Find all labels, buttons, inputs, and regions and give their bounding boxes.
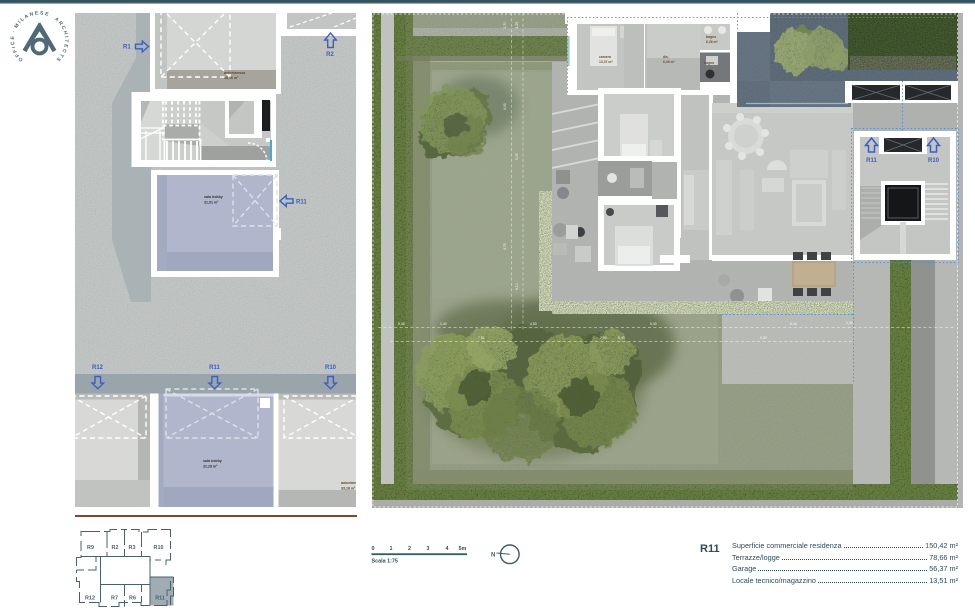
svg-text:0,30: 0,30 xyxy=(760,336,767,340)
svg-text:camera: camera xyxy=(599,55,611,59)
svg-text:1,40: 1,40 xyxy=(440,322,447,326)
svg-text:dis.: dis. xyxy=(663,55,669,59)
svg-text:bagno: bagno xyxy=(704,61,714,65)
svg-text:38,06 m²: 38,06 m² xyxy=(224,76,239,80)
svg-text:5,40: 5,40 xyxy=(650,322,657,326)
svg-text:R1: R1 xyxy=(123,45,131,51)
svg-text:R11: R11 xyxy=(296,200,307,206)
svg-text:4,53: 4,53 xyxy=(530,322,537,326)
svg-text:0,30: 0,30 xyxy=(846,321,853,325)
svg-text:0: 0 xyxy=(372,546,375,552)
svg-text:13,37 m²: 13,37 m² xyxy=(599,60,613,64)
svg-text:6,44: 6,44 xyxy=(790,322,797,326)
svg-text:0,40: 0,40 xyxy=(618,336,625,340)
svg-text:5,05: 5,05 xyxy=(515,153,519,160)
svg-text:R10: R10 xyxy=(154,545,164,551)
svg-text:4,75: 4,75 xyxy=(503,243,507,250)
svg-text:7,51: 7,51 xyxy=(478,336,485,340)
svg-text:R10: R10 xyxy=(325,365,337,371)
svg-text:R11: R11 xyxy=(209,365,220,371)
svg-text:32,28 m²: 32,28 m² xyxy=(203,465,218,469)
svg-text:5m: 5m xyxy=(459,546,467,552)
svg-text:R2: R2 xyxy=(112,545,119,551)
svg-text:R12: R12 xyxy=(85,596,95,602)
svg-text:R10: R10 xyxy=(928,158,940,164)
svg-text:33,18 m²: 33,18 m² xyxy=(341,487,356,491)
svg-text:autorimessa: autorimessa xyxy=(224,71,246,75)
svg-text:6,10: 6,10 xyxy=(515,283,519,290)
svg-text:R11: R11 xyxy=(155,596,165,602)
svg-text:R7: R7 xyxy=(111,596,118,602)
svg-text:1: 1 xyxy=(390,546,393,552)
svg-text:R12: R12 xyxy=(92,365,104,371)
svg-text:7,00: 7,00 xyxy=(600,336,607,340)
svg-text:3: 3 xyxy=(427,546,430,552)
svg-text:2,70: 2,70 xyxy=(503,22,507,29)
svg-text:3,25: 3,25 xyxy=(515,22,519,29)
svg-text:bagno: bagno xyxy=(706,35,716,39)
svg-text:6,26 m²: 6,26 m² xyxy=(706,40,719,44)
svg-text:2: 2 xyxy=(408,546,411,552)
svg-text:sala hobby: sala hobby xyxy=(203,459,222,463)
svg-text:4,35: 4,35 xyxy=(503,103,507,110)
svg-text:sala hobby: sala hobby xyxy=(204,195,223,199)
svg-text:31,91 m²: 31,91 m² xyxy=(204,201,219,205)
svg-text:4: 4 xyxy=(446,546,449,552)
svg-text:Scala 1:75: Scala 1:75 xyxy=(372,559,398,565)
svg-text:R9: R9 xyxy=(87,545,94,551)
svg-text:R3: R3 xyxy=(129,545,136,551)
svg-text:6,36 m²: 6,36 m² xyxy=(663,60,676,64)
svg-text:N: N xyxy=(491,553,495,559)
svg-text:R2: R2 xyxy=(326,52,334,58)
svg-text:5,48: 5,48 xyxy=(398,322,405,326)
svg-text:R6: R6 xyxy=(129,596,136,602)
svg-text:autorimess: autorimess xyxy=(341,481,356,485)
svg-text:R11: R11 xyxy=(866,158,877,164)
